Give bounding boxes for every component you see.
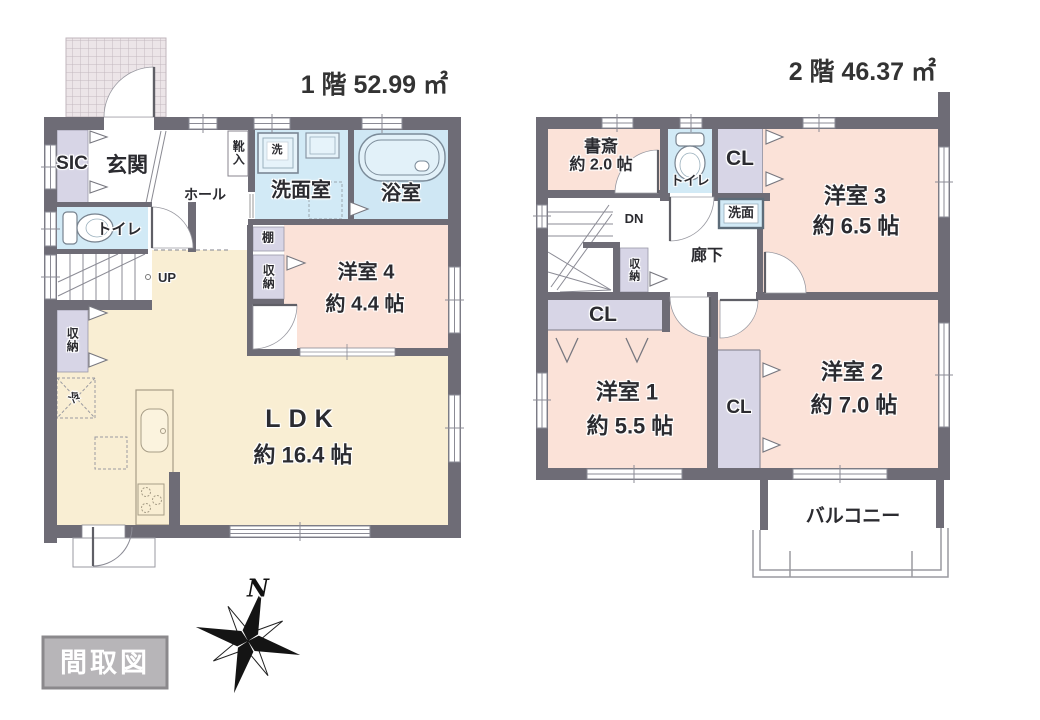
hall-label: ホール — [184, 188, 226, 203]
room4-area — [284, 225, 448, 348]
bathtub-icon — [359, 134, 445, 181]
basin-label: 洗面 — [728, 206, 754, 220]
legend-label: 間取図 — [60, 649, 150, 677]
shelf-label: 棚 — [262, 232, 274, 245]
closet-bar-label: CL — [589, 304, 617, 326]
room3-size-label: 約 6.5 帖 — [813, 214, 900, 237]
kitchen-back-door-gap — [82, 525, 125, 538]
back-porch-step — [73, 538, 155, 567]
room4-label: 洋室 4 — [338, 263, 395, 284]
closet-top-label: CL — [726, 148, 754, 170]
balcony-label: バルコニー — [806, 507, 901, 527]
toilet2-label: トイレ — [670, 174, 709, 188]
toilet2-tank-icon — [676, 133, 704, 146]
stairs-down-label: DN — [625, 212, 644, 226]
bathroom-label: 浴室 — [381, 184, 421, 205]
stairs-up-label: UP — [158, 271, 176, 285]
room4-size-label: 約 4.4 帖 — [326, 295, 405, 316]
floorplan-page: 1 階 52.99 ㎡ 2 階 46.37 ㎡ SIC 玄関 ホール 靴入 洗 … — [0, 0, 1040, 720]
closet-stairs-label: 収納 — [627, 258, 639, 282]
corridor-label: 廊下 — [691, 249, 723, 266]
compass-north-label: N — [247, 575, 269, 600]
sic-label: SIC — [56, 154, 88, 174]
room3-label: 洋室 3 — [824, 184, 886, 207]
bathtub-drain — [415, 161, 429, 171]
room1-size-label: 約 5.5 帖 — [587, 414, 674, 437]
toilet1-tank-icon — [63, 212, 77, 244]
washroom-label: 洗面室 — [271, 181, 331, 202]
room1-label: 洋室 1 — [596, 380, 658, 403]
ldk-size-label: 約 16.4 帖 — [253, 443, 352, 466]
shoe-box-label: 靴入 — [232, 140, 245, 166]
floorplan-drawing — [0, 0, 1040, 720]
floor1-title: 1 階 52.99 ㎡ — [270, 72, 448, 98]
study-label: 書斎 — [584, 138, 618, 156]
study-size-label: 約 2.0 帖 — [569, 158, 632, 175]
washroom-door-gap — [248, 192, 255, 219]
floor2-title: 2 階 46.37 ㎡ — [768, 59, 936, 85]
stairs1-start-marker — [146, 275, 151, 280]
kitchen-sink — [141, 409, 168, 452]
closet-left-label: 収納 — [66, 327, 79, 353]
closet-mid2-label: CL — [726, 398, 751, 418]
room2-size-label: 約 7.0 帖 — [811, 393, 898, 416]
toilet1-label: トイレ — [96, 222, 141, 238]
ldk-label: LDK — [265, 406, 340, 432]
room2-label: 洋室 2 — [821, 360, 883, 383]
entrance-label: 玄関 — [106, 155, 148, 177]
washer-label: 洗 — [272, 145, 283, 157]
balcony-railing — [753, 528, 948, 577]
closet-mid-label: 収納 — [262, 264, 275, 290]
